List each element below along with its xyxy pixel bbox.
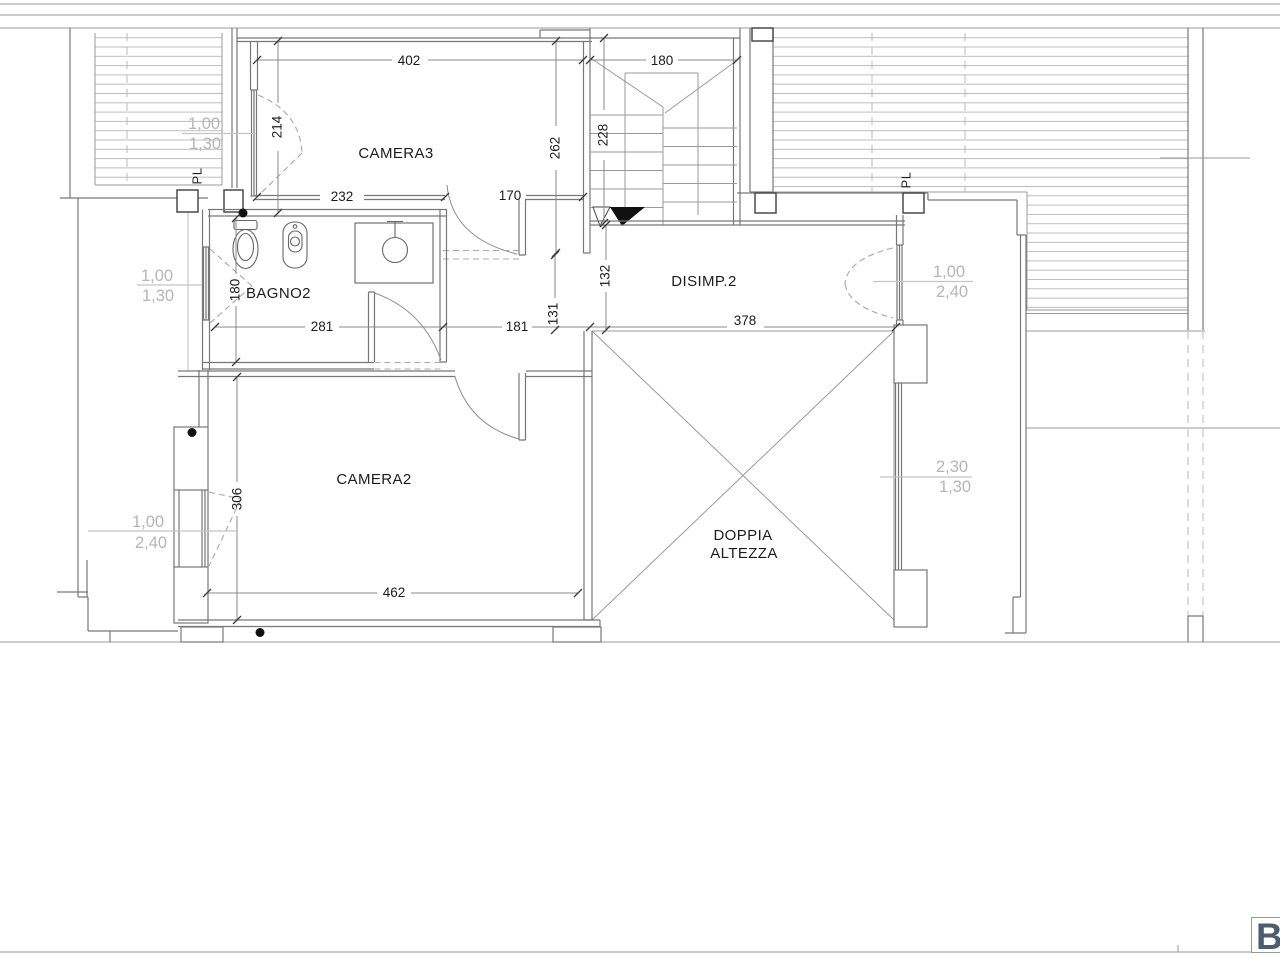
pillar-label-right: PL <box>899 172 914 189</box>
window-note-bagno2-left-h: 1,30 <box>142 287 174 305</box>
window-note-disimp2-right-w: 1,00 <box>933 263 965 281</box>
room-label-camera2: CAMERA2 <box>336 471 411 488</box>
window-note-terrace-left-h: 1,30 <box>189 135 221 153</box>
dim-bagno2-depth: 180 <box>228 279 243 302</box>
doppia-altezza-void <box>592 325 927 627</box>
drawing-sheet: 402 180 214 262 232 170 228 180 281 181 … <box>0 0 1280 960</box>
window-note-bagno2-left-w: 1,00 <box>141 267 173 285</box>
logo-box: B <box>1252 916 1280 957</box>
camera2-door <box>455 373 526 440</box>
room-label-disimp2: DISIMP.2 <box>671 273 736 290</box>
room-label-doppia-line1: DOPPIA <box>713 527 772 544</box>
floor-plan-canvas: 402 180 214 262 232 170 228 180 281 181 … <box>0 0 1280 960</box>
dim-doppia-width: 378 <box>734 313 757 328</box>
terrace-top-left <box>95 28 237 188</box>
window-note-camera2-left-h: 2,40 <box>135 534 167 552</box>
bidet-fixture <box>283 222 307 268</box>
dim-camera2-width: 462 <box>383 585 406 600</box>
dim-disimp2-width: 132 <box>598 265 613 288</box>
dim-stair-width: 180 <box>651 53 674 68</box>
dim-camera3-left: 214 <box>270 115 285 138</box>
window-note-doppia-right-h: 1,30 <box>939 478 971 496</box>
dim-camera3-width: 402 <box>398 53 421 68</box>
disimp2-right-wall <box>845 215 903 331</box>
logo-letter: B <box>1256 916 1280 957</box>
dim-hall-width: 181 <box>506 319 529 334</box>
window-note-terrace-left-w: 1,00 <box>188 115 220 133</box>
window-note-doppia-right-w: 2,30 <box>936 458 968 476</box>
dim-stair-depth: 228 <box>596 124 611 147</box>
dim-camera2-depth: 306 <box>230 488 245 511</box>
dim-camera3-door: 170 <box>499 188 522 203</box>
dim-bagno2-width: 281 <box>311 319 334 334</box>
pillar-label-left: PL <box>190 168 205 185</box>
dim-hall-depth: 131 <box>546 303 561 326</box>
shower-fixture <box>355 222 433 284</box>
dim-camera3-wall: 232 <box>331 189 354 204</box>
camera3-window-swing <box>258 95 302 196</box>
window-note-disimp2-right-h: 2,40 <box>936 283 968 301</box>
terrace-top-right <box>750 28 1280 642</box>
window-note-camera2-left-w: 1,00 <box>132 513 164 531</box>
stair-direction-arrow <box>610 207 645 226</box>
room-label-doppia-line2: ALTEZZA <box>710 545 778 562</box>
toilet-fixture <box>233 221 258 269</box>
room-label-camera3: CAMERA3 <box>358 145 433 162</box>
room-label-bagno2: BAGNO2 <box>246 285 311 302</box>
dim-camera3-depth: 262 <box>548 137 563 160</box>
